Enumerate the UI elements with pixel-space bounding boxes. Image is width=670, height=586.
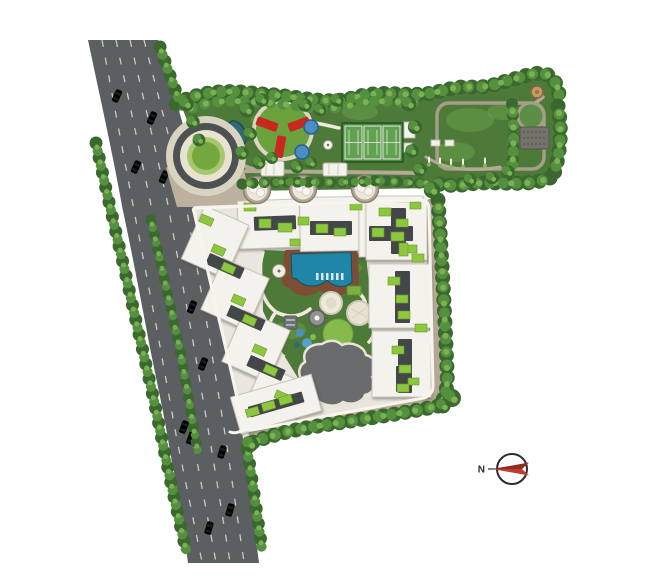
pool-water (291, 252, 352, 286)
site-plan-page: N (0, 0, 670, 586)
splash-pad (295, 145, 309, 159)
timber-deck (284, 316, 297, 329)
entrance-roundabout (166, 116, 246, 196)
green-pergola (347, 286, 361, 295)
seating-deck (520, 127, 549, 149)
round-lawn (518, 103, 544, 129)
pergola (323, 163, 347, 176)
tennis-courts (341, 122, 404, 163)
lawn-bench (445, 140, 454, 146)
splash-pad (304, 120, 318, 134)
compass: N (478, 454, 529, 484)
lawn-bench (431, 140, 440, 146)
compass-north-label: N (478, 465, 485, 476)
site-plan-image: N (0, 0, 670, 586)
